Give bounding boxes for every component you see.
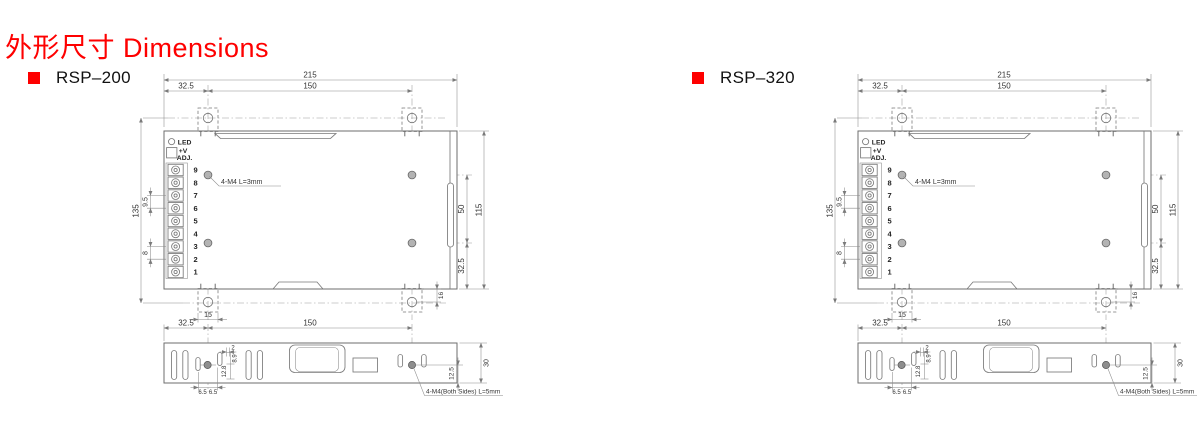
page: 外形尺寸 Dimensions RSP–200 RSP–320 — [0, 0, 1200, 438]
rsp-320-drawing — [826, 71, 1198, 396]
dimension-drawings: LED +V ADJ. 9 — [0, 0, 1200, 438]
rsp-200-drawing — [132, 71, 504, 396]
